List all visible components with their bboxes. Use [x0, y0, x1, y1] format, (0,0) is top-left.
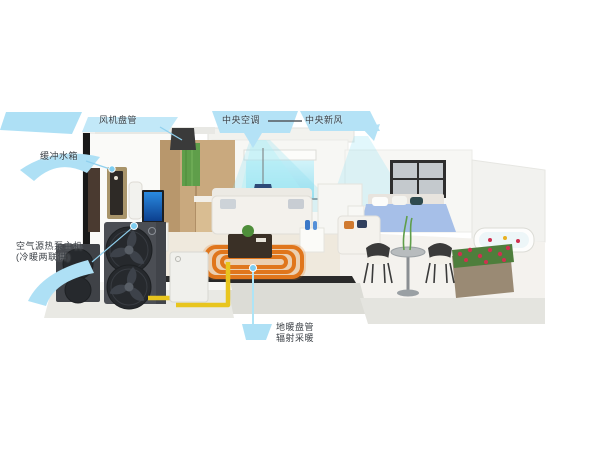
marker-dot-buffer-tank [109, 166, 115, 172]
tub-flower-3 [516, 239, 520, 243]
callout-heat-pump-line1: 空气源热泵主机 [16, 241, 83, 252]
blue-vase-2 [313, 221, 317, 230]
coffee-table [228, 234, 272, 258]
arrow-floor-heating [242, 324, 272, 340]
callout-heat-pump: 空气源热泵主机 (冷暖两联供) [16, 241, 83, 263]
callout-buffer-tank: 缓冲水箱 [40, 151, 78, 161]
sofa-cushion-1 [220, 199, 236, 209]
daybed-pillow-orange [344, 221, 354, 229]
tub-flower-2 [503, 236, 507, 240]
round-table-top [391, 247, 425, 257]
house-illustration [0, 0, 600, 450]
callout-fresh-air: 中央新风 [305, 115, 343, 125]
bed-pillow-1 [372, 197, 388, 206]
unit1-fan-bottom [107, 265, 151, 309]
table-base [397, 290, 419, 297]
blue-vase-1 [305, 220, 310, 230]
unit1-side-panel [156, 222, 166, 304]
right-fascia [360, 298, 545, 324]
daybed-pillow-navy [357, 220, 367, 228]
table-plant [242, 225, 254, 237]
scene-home-hvac-cutaway: 风机盘管 中央空调 中央新风 缓冲水箱 空气源热泵主机 (冷暖两联供) 地暖盘管… [0, 0, 600, 450]
bed-pillow-2 [392, 196, 407, 205]
callout-floor-heating-line1: 地暖盘管 [276, 322, 314, 333]
sofa-cushion-2 [288, 199, 304, 209]
bed-pillow-dark [410, 197, 423, 205]
marker-dot-floor-heating [250, 265, 257, 272]
ribbon-top-left [0, 112, 82, 134]
left-door-panel [88, 168, 100, 232]
callout-floor-heating: 地暖盘管 辐射采暖 [276, 322, 314, 344]
tv-screen [144, 192, 162, 221]
table-books [256, 238, 266, 242]
range-hood [170, 128, 196, 150]
gold-cabinet-logo [114, 176, 118, 180]
callout-floor-heating-line2: 辐射采暖 [276, 333, 314, 344]
white-cylinder-tank [129, 182, 142, 219]
callout-fan-coil: 风机盘管 [99, 115, 137, 125]
marker-dot-heat-pump [131, 223, 138, 230]
blue-vase-table [300, 228, 324, 252]
callout-central-ac: 中央空调 [222, 115, 260, 125]
callout-heat-pump-line2: (冷暖两联供) [16, 252, 83, 263]
tub-flower-1 [488, 238, 492, 242]
